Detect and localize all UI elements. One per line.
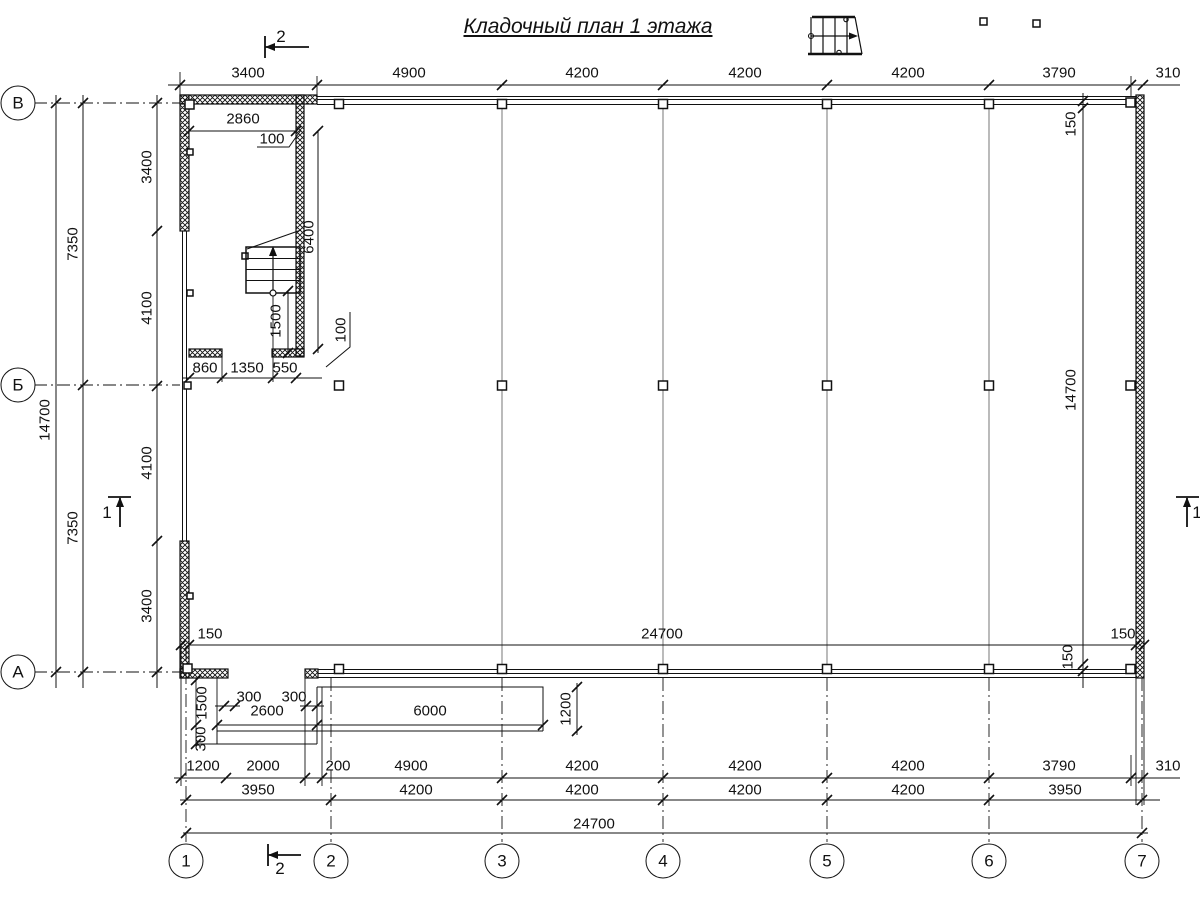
dim-row1-1: 1200 bbox=[186, 759, 219, 774]
axis-bubble-row-v: В bbox=[1, 86, 36, 121]
stair-symbol-arrowhead-icon bbox=[849, 33, 858, 40]
wall-right bbox=[1136, 95, 1144, 678]
wall-stairroom-bottom-a bbox=[189, 349, 222, 357]
axis-bubble-col-4: 4 bbox=[646, 844, 681, 879]
section-label-right: 1 bbox=[1192, 503, 1200, 523]
wall-left-upper bbox=[180, 95, 189, 231]
dim-row1-2: 2000 bbox=[246, 759, 279, 774]
dim-stair-gap-bottom: 100 bbox=[334, 317, 349, 342]
drawing-title: Кладочный план 1 этажа bbox=[463, 15, 712, 39]
section-mark-lines bbox=[108, 36, 1199, 866]
plan-drawing bbox=[0, 0, 1200, 900]
dim-stair-gap-top: 100 bbox=[259, 132, 284, 147]
dim-left-total: 14700 bbox=[38, 399, 53, 441]
column-squares bbox=[183, 18, 1135, 674]
axis-bubble-col-2: 2 bbox=[314, 844, 349, 879]
dim-porch-walk-width: 1200 bbox=[559, 692, 574, 725]
dim-row2-3: 4200 bbox=[565, 783, 598, 798]
dim-top-1: 3400 bbox=[231, 66, 264, 81]
dim-stair-depth: 6400 bbox=[302, 220, 317, 253]
floor-plan-sheet: Кладочный план 1 этажа 3400 4900 4200 42… bbox=[0, 0, 1200, 900]
stair-symbol-icon bbox=[808, 17, 862, 55]
dim-stair-width: 2860 bbox=[226, 112, 259, 127]
dim-left-seg-1: 3400 bbox=[140, 150, 155, 183]
dim-stair-b1: 860 bbox=[192, 361, 217, 376]
axis-bubble-row-a: А bbox=[1, 655, 36, 690]
section-label-left: 1 bbox=[102, 503, 111, 523]
stair-walkline-start bbox=[270, 290, 276, 296]
dim-top-2: 4900 bbox=[392, 66, 425, 81]
section-arrow-right-icon bbox=[1183, 497, 1191, 507]
wall-bottom-stub bbox=[305, 669, 318, 678]
dim-top-3: 4200 bbox=[565, 66, 598, 81]
witness-lines bbox=[180, 72, 1144, 805]
dim-left-seg-2: 4100 bbox=[140, 291, 155, 324]
dim-row2-1: 3950 bbox=[241, 783, 274, 798]
dim-row2-4: 4200 bbox=[728, 783, 761, 798]
axis-bubble-row-b: Б bbox=[1, 368, 36, 403]
dim-row1-5: 4200 bbox=[565, 759, 598, 774]
dim-left-seg-4: 3400 bbox=[140, 589, 155, 622]
dim-porch-walk: 6000 bbox=[413, 704, 446, 719]
axis-bubble-col-6: 6 bbox=[972, 844, 1007, 879]
dim-row2-5: 4200 bbox=[891, 783, 924, 798]
dim-stair-b3: 550 bbox=[272, 361, 297, 376]
dim-row1-4: 4900 bbox=[394, 759, 427, 774]
stair-break-line bbox=[247, 230, 301, 249]
axis-bubble-col-3: 3 bbox=[485, 844, 520, 879]
axis-bubble-col-1: 1 bbox=[169, 844, 204, 879]
axis-bubble-col-5: 5 bbox=[810, 844, 845, 879]
interior-axis-lines bbox=[502, 105, 989, 669]
dim-porch-v1500: 1500 bbox=[195, 686, 210, 719]
section-arrow-bottom-icon bbox=[268, 851, 278, 859]
dim-porch-stoop: 2600 bbox=[250, 704, 283, 719]
axis-bubble-col-7: 7 bbox=[1125, 844, 1160, 879]
section-label-top: 2 bbox=[276, 27, 285, 47]
section-marks bbox=[108, 36, 1199, 866]
dim-stair-run: 1500 bbox=[269, 304, 284, 337]
dim-row1-8: 3790 bbox=[1042, 759, 1075, 774]
dim-row2-2: 4200 bbox=[399, 783, 432, 798]
dim-top-6: 3790 bbox=[1042, 66, 1075, 81]
dim-row1-9: 310 bbox=[1155, 759, 1180, 774]
dim-bottom-total: 24700 bbox=[573, 817, 615, 832]
dim-inner-bottom-left: 150 bbox=[197, 627, 222, 642]
tick-marks bbox=[51, 80, 1149, 838]
dim-inner-right-top: 150 bbox=[1064, 111, 1079, 136]
dim-top-7: 310 bbox=[1155, 66, 1180, 81]
dim-inner-bottom-total: 24700 bbox=[641, 627, 683, 642]
dim-stair-b2: 1350 bbox=[230, 361, 263, 376]
dim-porch-v300: 300 bbox=[194, 726, 209, 751]
dimension-lines bbox=[56, 85, 1180, 833]
dim-row2-6: 3950 bbox=[1048, 783, 1081, 798]
dim-left-half-2: 7350 bbox=[66, 511, 81, 544]
dim-left-half-1: 7350 bbox=[66, 227, 81, 260]
dim-porch-step-2: 300 bbox=[281, 690, 306, 705]
dim-inner-right-total: 14700 bbox=[1064, 369, 1079, 411]
dim-left-seg-3: 4100 bbox=[140, 446, 155, 479]
dim-top-4: 4200 bbox=[728, 66, 761, 81]
dim-top-5: 4200 bbox=[891, 66, 924, 81]
dim-inner-bottom-right: 150 bbox=[1110, 627, 1135, 642]
dim-row1-3: 200 bbox=[325, 759, 350, 774]
section-arrow-top-icon bbox=[265, 43, 275, 51]
dim-row1-7: 4200 bbox=[891, 759, 924, 774]
section-arrow-left-icon bbox=[116, 497, 124, 507]
section-label-bottom: 2 bbox=[275, 859, 284, 879]
dim-inner-right-bottom: 150 bbox=[1061, 644, 1076, 669]
dim-row1-6: 4200 bbox=[728, 759, 761, 774]
